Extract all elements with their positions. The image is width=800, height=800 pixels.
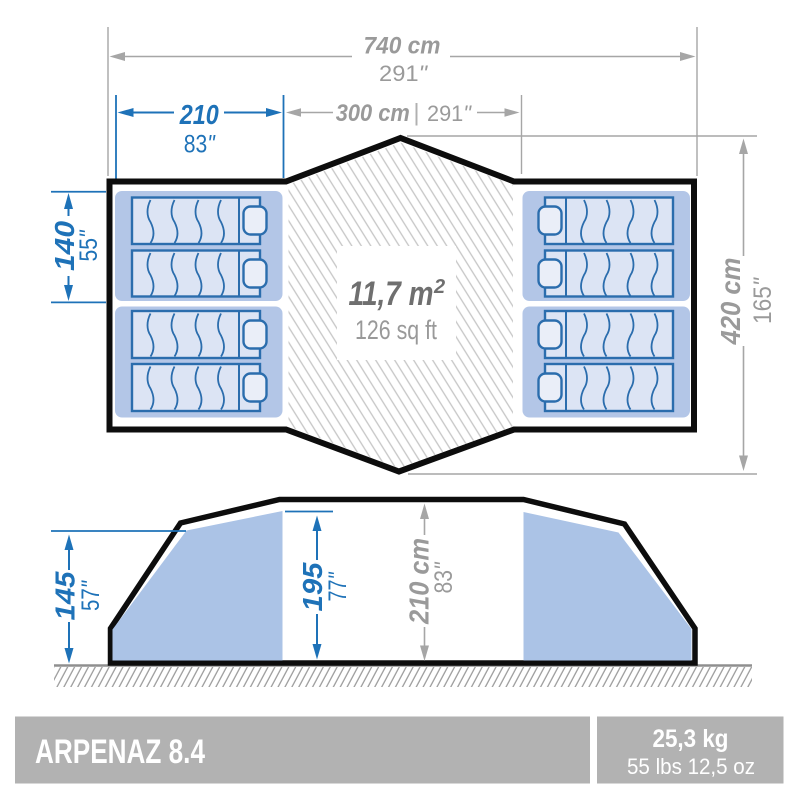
svg-text:145: 145 [50, 571, 81, 621]
svg-text:57": 57" [77, 580, 105, 611]
svg-text:420 cm: 420 cm [715, 258, 746, 346]
svg-text:83": 83" [430, 562, 458, 594]
svg-text:291": 291" [427, 101, 472, 126]
svg-text:740 cm: 740 cm [364, 33, 441, 60]
svg-text:|: | [413, 100, 419, 127]
svg-text:2: 2 [433, 276, 445, 298]
svg-text:55": 55" [75, 230, 103, 262]
svg-text:300 cm: 300 cm [336, 100, 410, 127]
svg-text:25,3 kg: 25,3 kg [653, 725, 729, 753]
svg-text:165": 165" [749, 277, 777, 324]
svg-text:291": 291" [379, 61, 428, 86]
svg-text:126 sq ft: 126 sq ft [355, 315, 437, 345]
svg-text:210: 210 [179, 99, 219, 130]
svg-text:55 lbs 12,5 oz: 55 lbs 12,5 oz [627, 754, 755, 779]
svg-text:83": 83" [184, 131, 216, 159]
svg-text:11,7 m: 11,7 m [349, 275, 434, 313]
svg-text:ARPENAZ 8.4: ARPENAZ 8.4 [35, 733, 205, 771]
svg-text:77": 77" [324, 572, 352, 602]
